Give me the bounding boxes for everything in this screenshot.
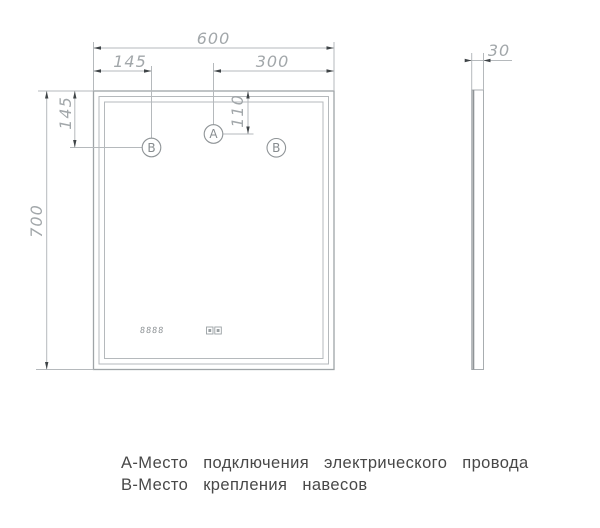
- clock-display: 8888: [139, 326, 164, 335]
- legend-line-b: В-Место крепления навесов: [121, 475, 529, 497]
- marker-b-left-label: В: [147, 141, 155, 153]
- touch-sensor-icons: [207, 327, 222, 334]
- dim-thickness-label: 30: [488, 43, 510, 59]
- marker-a-label: А: [209, 128, 217, 140]
- drawing-linework: [0, 0, 600, 528]
- dim-width-label: 600: [197, 31, 231, 47]
- technical-drawing: 600 145 300 700 145 110 30 А В В 8888 А-…: [0, 0, 600, 528]
- dimension-arrowheads: [45, 46, 491, 369]
- dim-outlet-from-top-label: 110: [230, 94, 246, 128]
- dim-hinge-from-left-label: 145: [113, 54, 147, 70]
- marker-b-right-label: В: [272, 142, 280, 154]
- legend: А-Место подключения электрического прово…: [121, 453, 529, 496]
- legend-line-a: А-Место подключения электрического прово…: [121, 453, 529, 475]
- dim-hinge-from-top-label: 145: [58, 96, 74, 130]
- dim-center-to-right-label: 300: [256, 54, 290, 70]
- dim-height-label: 700: [29, 204, 45, 238]
- side-view: [465, 53, 512, 370]
